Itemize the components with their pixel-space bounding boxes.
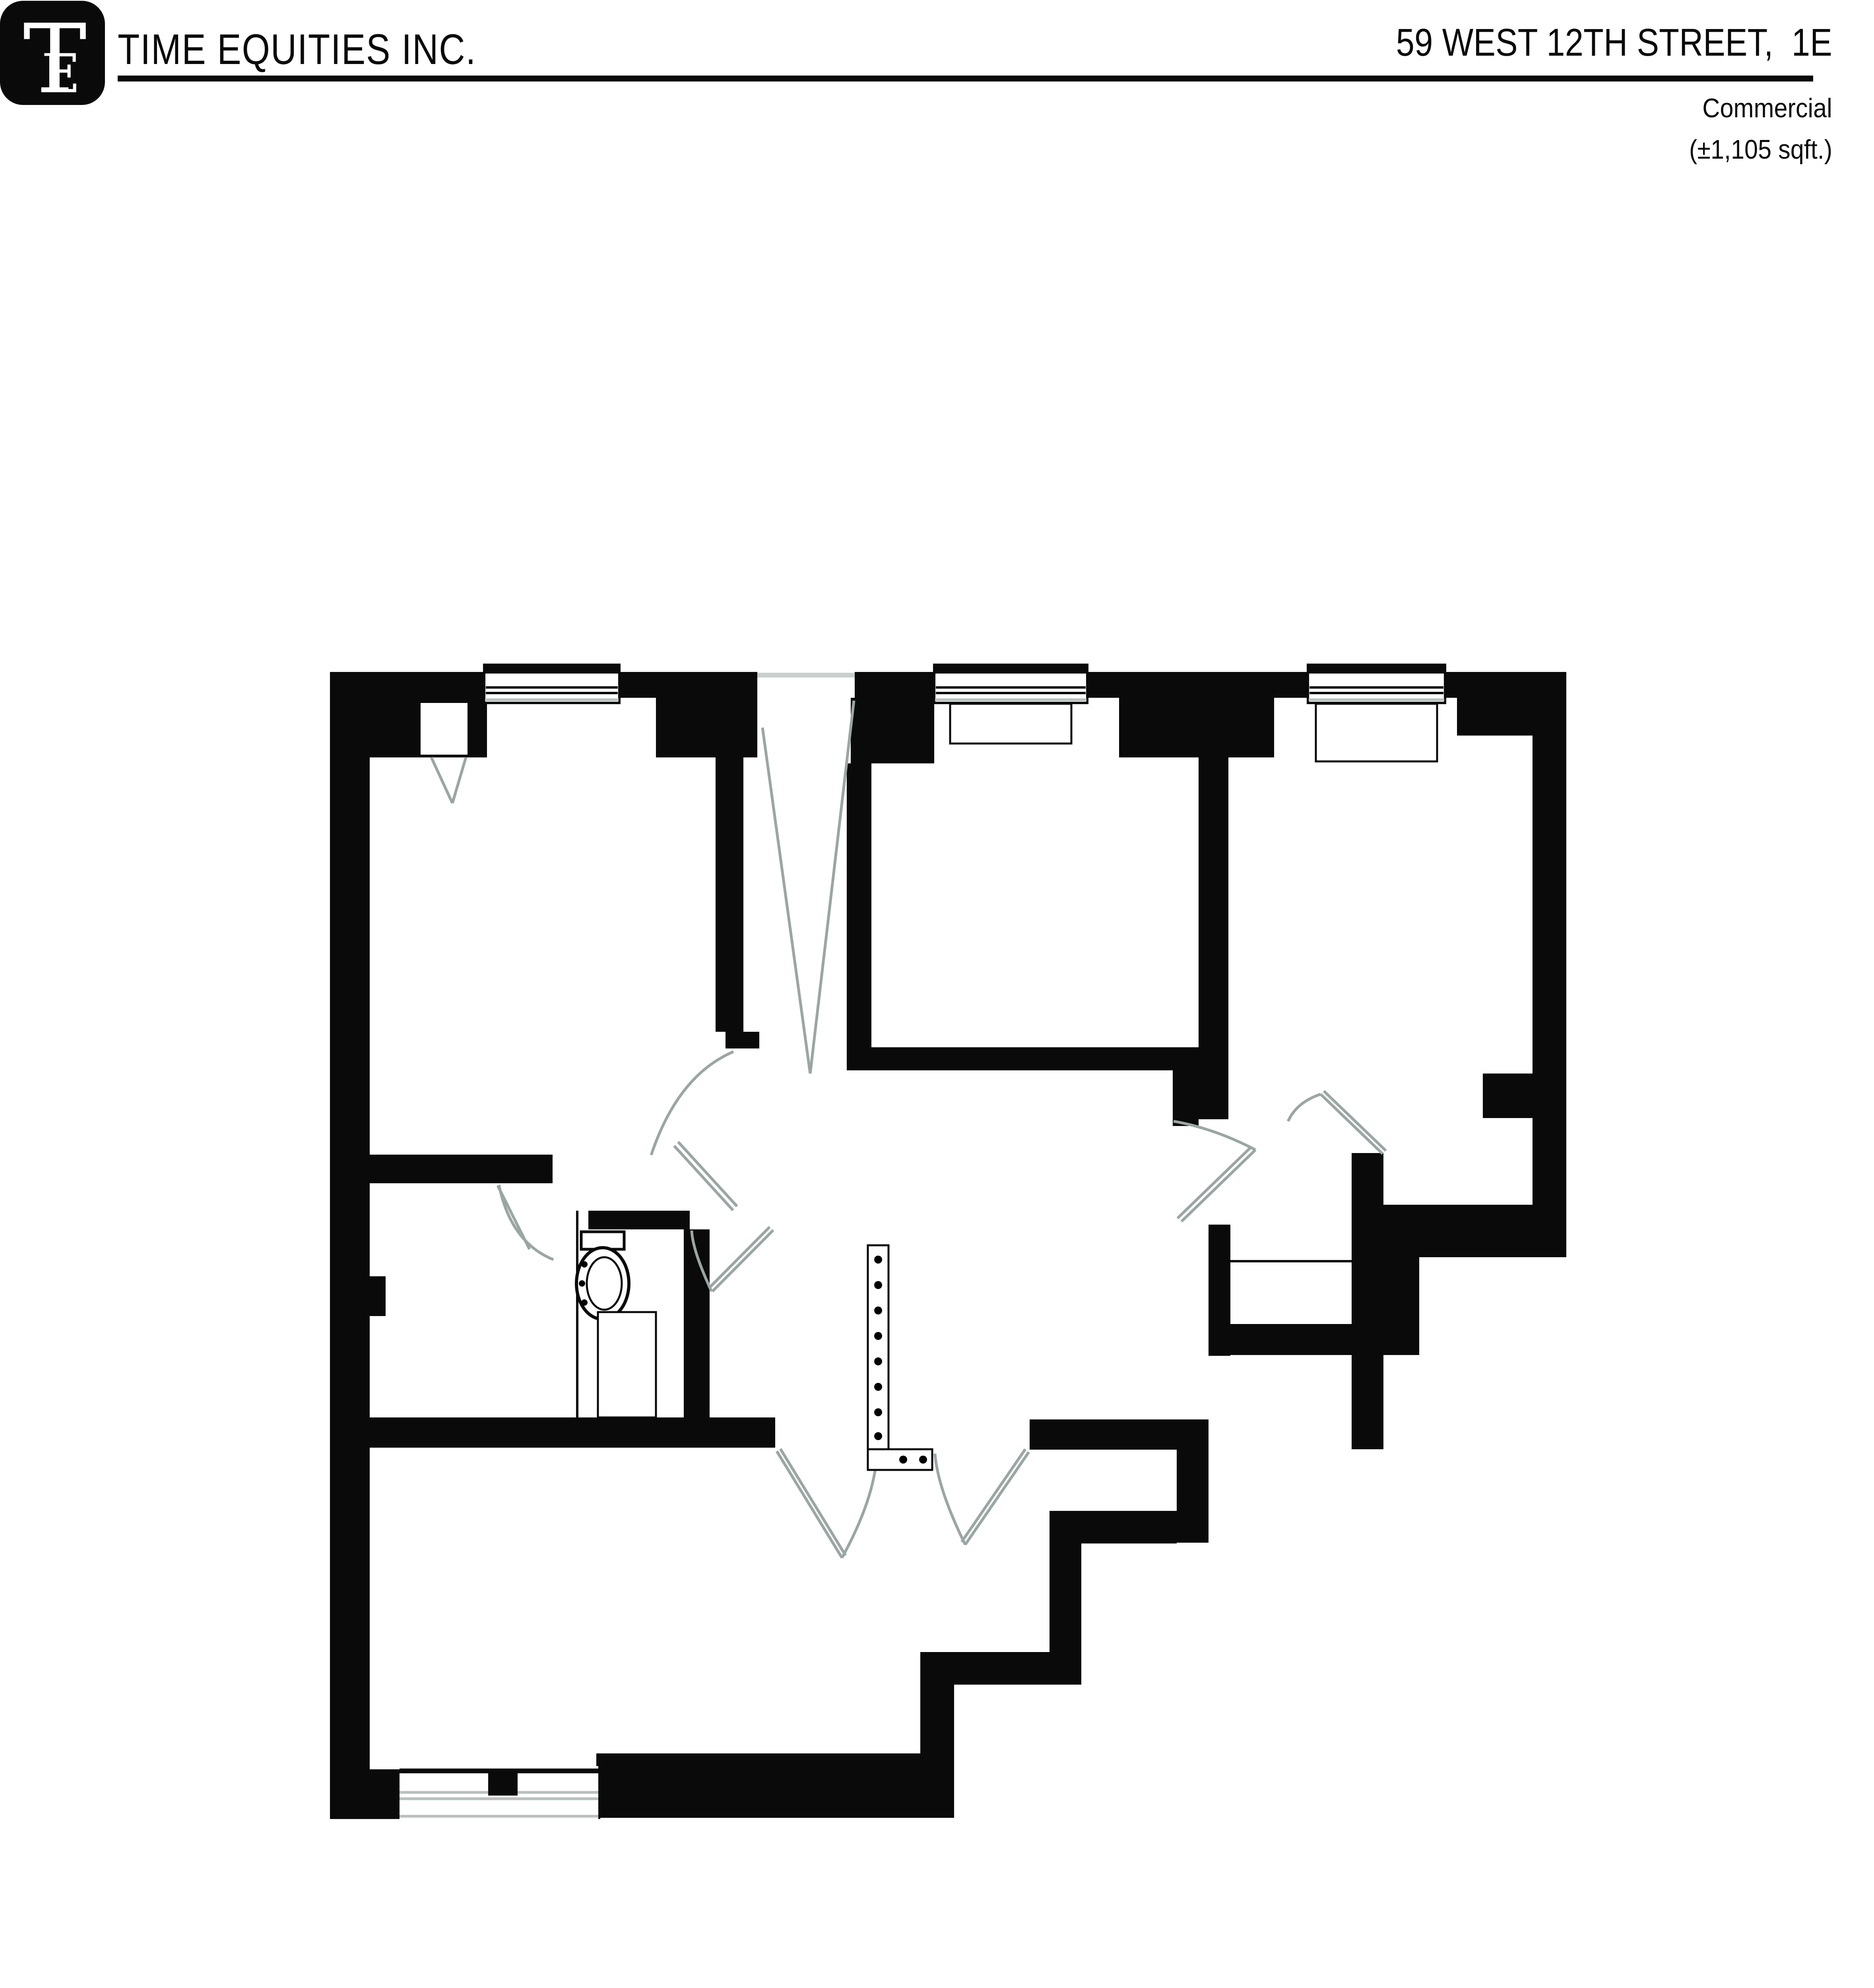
door-swing-icon xyxy=(762,701,854,1074)
walls xyxy=(330,672,1566,1819)
floor-plan-drawing xyxy=(0,0,1874,1988)
window-bottom xyxy=(400,1766,598,1822)
bathroom xyxy=(576,1211,656,1417)
door-swing-icon xyxy=(651,1052,737,1210)
entry-threshold xyxy=(757,673,855,678)
window-top-right xyxy=(1308,665,1445,761)
floor-plan-sheet: T E TIME EQUITIES INC. 59 WEST 12TH STRE… xyxy=(0,0,1874,1988)
door-swing-icon xyxy=(1288,1091,1386,1154)
window-top-middle xyxy=(934,665,1087,744)
window-top-left xyxy=(484,665,619,703)
window-mullion xyxy=(488,1769,518,1796)
closet-notch xyxy=(421,703,468,755)
door-swing-icon xyxy=(935,1449,1029,1545)
window-sill xyxy=(950,704,1071,744)
vanity-counter-icon xyxy=(598,1312,656,1417)
door-swing-icon xyxy=(498,1185,553,1260)
toilet-icon xyxy=(576,1232,629,1319)
door-swing-icon xyxy=(431,757,466,803)
column-partition-strip xyxy=(868,1245,932,1470)
window-sill xyxy=(1316,704,1437,761)
door-swing-icon xyxy=(777,1449,877,1558)
door-swing-icon xyxy=(1174,1121,1255,1221)
